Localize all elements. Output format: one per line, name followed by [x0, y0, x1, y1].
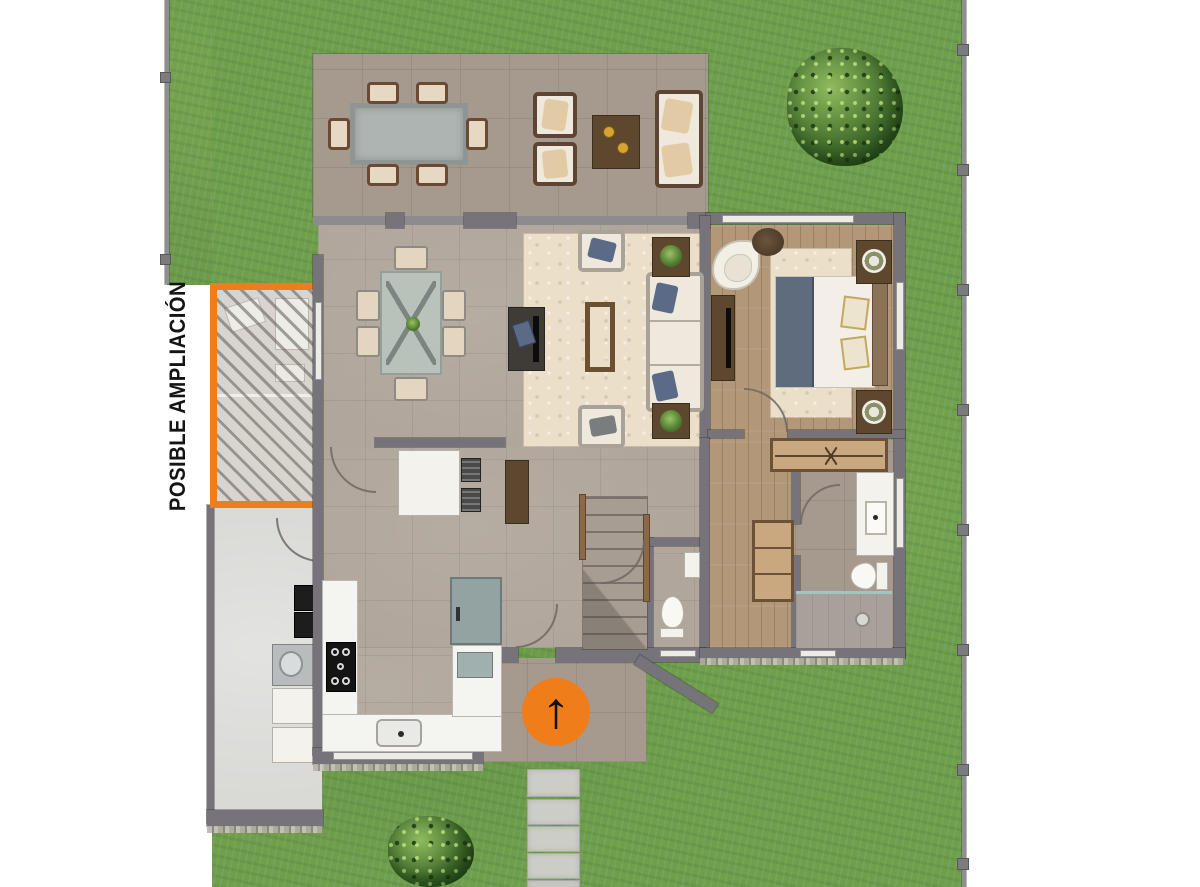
powder-toilet-bowl: [661, 596, 684, 628]
side-table-plant: [660, 410, 682, 432]
bedroom-ottoman: [752, 228, 784, 256]
dining-chair: [442, 290, 466, 321]
tree-bottom-left: [388, 816, 474, 887]
sliding-door-panel: [386, 213, 404, 228]
shower-floor: [796, 594, 892, 648]
terrace-sofa-cushion: [661, 142, 693, 178]
floor-plan: POSIBLE AMPLIACIÓN: [0, 0, 1200, 887]
terrace-chair: [367, 164, 399, 186]
closet-top: [770, 438, 888, 472]
tv-stand: [508, 307, 545, 371]
path-stone: [527, 799, 580, 825]
bedroom-armchair-seat: [724, 254, 752, 282]
burner-center: [336, 662, 346, 672]
terrace-dining-table: [350, 103, 468, 165]
patio-wall-left: [207, 505, 214, 823]
breakfast-table: [398, 450, 460, 516]
shower-window-bottom: [800, 650, 836, 657]
fence-post: [957, 284, 969, 296]
stair-rail: [579, 494, 586, 560]
bedroom-window-top: [722, 215, 854, 223]
terrace-chair: [416, 82, 448, 104]
fence-post: [957, 524, 969, 536]
terrace-armchair-cushion: [542, 149, 569, 179]
bed-pillow: [840, 296, 870, 331]
armchair-throw: [589, 415, 618, 437]
fence-left: [165, 0, 169, 284]
nightstand-lamp: [862, 249, 886, 273]
north-arrow-badge: ↑: [522, 678, 590, 746]
dining-chair: [394, 246, 428, 270]
breakfast-chair: [461, 458, 481, 482]
shower-drain: [855, 612, 870, 627]
path-stone: [527, 826, 580, 852]
north-arrow-icon: ↑: [541, 687, 571, 737]
bath-faucet: [873, 515, 878, 520]
closet-side: [752, 520, 794, 602]
powder-toilet-tank: [660, 628, 684, 638]
terrace-chair: [328, 118, 350, 150]
dining-table: [380, 271, 442, 375]
dining-centerpiece-plant: [406, 317, 420, 331]
sofa-seat-line: [650, 364, 700, 366]
terrace-armchair-cushion: [541, 98, 569, 131]
fence-post: [957, 644, 969, 656]
terrace-chair: [367, 82, 399, 104]
wall-hall-right: [700, 438, 709, 648]
terrace-chair: [416, 164, 448, 186]
fence-post: [957, 164, 969, 176]
bed: [775, 276, 875, 388]
closet-window-bottom: [660, 650, 696, 657]
closet-shelf-line: [755, 573, 791, 575]
living-armchair-top: [578, 230, 625, 272]
microwave: [457, 652, 493, 678]
expansion-label: POSIBLE AMPLIACIÓN: [152, 283, 204, 508]
coffee-table: [585, 302, 615, 372]
toilet-bowl: [851, 563, 877, 590]
dining-chair: [394, 377, 428, 401]
bath-vanity: [856, 472, 894, 556]
burner: [331, 677, 339, 685]
dining-chair: [356, 326, 380, 357]
bedroom-window-right: [896, 282, 904, 350]
path-stone: [527, 853, 580, 879]
terrace-table-decor: [603, 126, 615, 138]
headboard: [872, 280, 888, 386]
burner: [331, 648, 339, 656]
sliding-door-panel: [464, 213, 516, 228]
fence-post: [160, 72, 171, 83]
terrace-sofa-cushion: [660, 98, 693, 134]
patio-gravel-edge: [207, 826, 323, 833]
fence-right: [962, 0, 966, 887]
side-table-bottom: [652, 403, 690, 439]
terrace-chair: [466, 118, 488, 150]
path-stone: [527, 880, 580, 887]
refrigerator: [450, 577, 502, 645]
bathroom-window-right: [896, 478, 904, 548]
expansion-label-text: POSIBLE AMPLIACIÓN: [165, 280, 191, 510]
cooktop: [326, 642, 356, 692]
hall-cabinet: [505, 460, 529, 524]
nightstand-top: [856, 240, 892, 284]
side-table-top: [652, 237, 690, 277]
closet-hanger-mark: [825, 447, 837, 465]
toilet-tank: [876, 562, 888, 590]
path-stone: [527, 769, 580, 797]
living-sofa: [646, 272, 704, 412]
sofa-pillow: [651, 282, 678, 314]
window-left: [315, 302, 322, 380]
sofa-pillow: [651, 370, 678, 402]
fence-post: [957, 404, 969, 416]
gravel-edge-bottom: [313, 764, 483, 771]
fence-post: [160, 254, 171, 265]
expansion-area: [210, 283, 320, 508]
stair-rail: [643, 514, 650, 602]
laundry-sink-basin: [279, 651, 303, 677]
fence-post: [957, 858, 969, 870]
powder-sink: [684, 552, 700, 578]
wall-hall-divider: [375, 438, 505, 447]
living-armchair-bottom: [578, 405, 625, 448]
nightstand-bottom: [856, 390, 892, 434]
gravel-edge-right-block: [700, 658, 905, 665]
sofa-seat-line: [650, 320, 700, 322]
wall-bedroom-bottom: [708, 430, 744, 438]
armchair-throw: [587, 237, 617, 263]
wall-powder-top: [645, 538, 705, 546]
burner: [342, 648, 350, 656]
tree-top-right: [787, 48, 903, 166]
patio-wall-bottom: [207, 810, 323, 826]
fence-post: [957, 44, 969, 56]
kitchen-window-bottom: [333, 752, 473, 760]
refrigerator-handle: [456, 607, 460, 621]
closet-shelf-line: [755, 547, 791, 549]
dining-chair: [356, 290, 380, 321]
bed-pillow: [840, 336, 870, 371]
shower-glass: [796, 591, 892, 594]
bed-blanket: [776, 277, 814, 387]
expansion-hatch: [217, 290, 313, 501]
bedroom-tv-console: [711, 295, 735, 381]
kitchen-faucet: [398, 731, 404, 737]
bedroom-tv-screen: [726, 308, 731, 368]
dining-chair: [442, 326, 466, 357]
kitchen-sink: [376, 719, 422, 747]
burner: [342, 677, 350, 685]
fence-post: [957, 764, 969, 776]
terrace-coffee-table: [592, 115, 640, 169]
side-table-plant: [660, 245, 682, 267]
terrace-table-decor: [617, 142, 629, 154]
breakfast-chair: [461, 488, 481, 512]
nightstand-lamp: [862, 400, 886, 424]
